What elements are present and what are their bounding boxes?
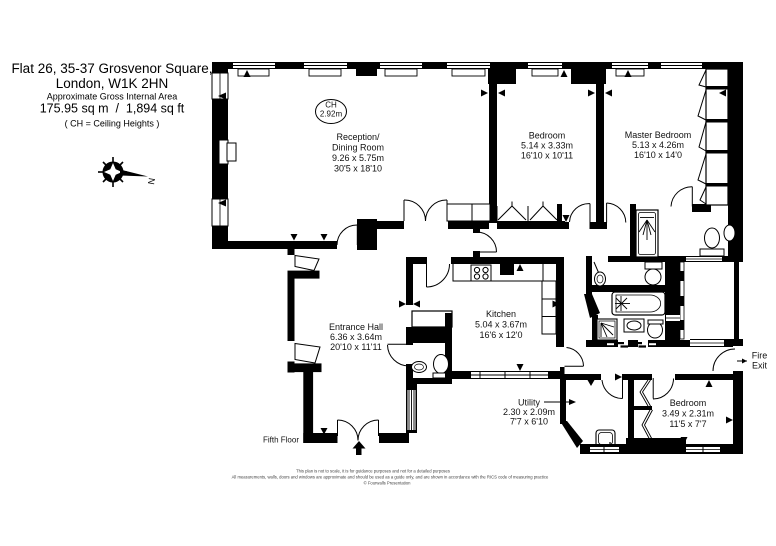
svg-text:6.36 x 3.64m: 6.36 x 3.64m bbox=[330, 332, 382, 342]
svg-text:Approximate Gross Internal Are: Approximate Gross Internal Area bbox=[47, 92, 178, 102]
svg-text:Fifth Floor: Fifth Floor bbox=[263, 436, 299, 445]
svg-text:7'7 x 6'10: 7'7 x 6'10 bbox=[510, 417, 548, 427]
svg-text:5.04 x 3.67m: 5.04 x 3.67m bbox=[475, 320, 527, 330]
svg-text:Fire: Fire bbox=[752, 351, 768, 361]
svg-text:2.30 x 2.09m: 2.30 x 2.09m bbox=[503, 407, 555, 417]
svg-text:2.92m: 2.92m bbox=[320, 110, 343, 119]
svg-text:Kitchen: Kitchen bbox=[486, 309, 516, 319]
svg-text:Bedroom: Bedroom bbox=[529, 131, 566, 141]
svg-text:16'6 x 12'0: 16'6 x 12'0 bbox=[480, 330, 523, 340]
svg-text:© Fourwalls Presentation: © Fourwalls Presentation bbox=[364, 481, 412, 486]
svg-text:All measurements, walls, doors: All measurements, walls, doors and windo… bbox=[232, 475, 549, 480]
svg-text:Flat 26, 35-37 Grosvenor Squar: Flat 26, 35-37 Grosvenor Square, bbox=[11, 61, 212, 76]
svg-text:Bedroom: Bedroom bbox=[670, 398, 707, 408]
svg-text:London, W1K 2HN: London, W1K 2HN bbox=[56, 76, 169, 91]
svg-text:Reception/: Reception/ bbox=[336, 132, 380, 142]
svg-text:Utility: Utility bbox=[518, 398, 540, 408]
svg-text:175.95 sq m / 1,894 sq ft: 175.95 sq m / 1,894 sq ft bbox=[40, 102, 185, 116]
svg-text:5.13 x 4.26m: 5.13 x 4.26m bbox=[632, 140, 684, 150]
svg-text:16'10 x 14'0: 16'10 x 14'0 bbox=[634, 150, 682, 160]
svg-text:20'10 x 11'11: 20'10 x 11'11 bbox=[330, 342, 382, 352]
svg-text:Entrance Hall: Entrance Hall bbox=[329, 322, 383, 332]
svg-text:5.14 x 3.33m: 5.14 x 3.33m bbox=[521, 141, 573, 151]
svg-text:11'5 x 7'7: 11'5 x 7'7 bbox=[669, 419, 706, 429]
svg-text:Dining Room: Dining Room bbox=[332, 143, 384, 153]
svg-text:30'5 x 18'10: 30'5 x 18'10 bbox=[334, 164, 382, 174]
svg-text:( CH = Ceiling Heights ): ( CH = Ceiling Heights ) bbox=[65, 119, 160, 129]
svg-text:Master Bedroom: Master Bedroom bbox=[625, 130, 692, 140]
svg-text:This plan is not to scale, it: This plan is not to scale, it is for gui… bbox=[296, 469, 450, 474]
svg-text:16'10 x 10'11: 16'10 x 10'11 bbox=[521, 151, 573, 161]
svg-text:9.26 x 5.75m: 9.26 x 5.75m bbox=[332, 153, 384, 163]
svg-text:3.49 x 2.31m: 3.49 x 2.31m bbox=[662, 409, 714, 419]
svg-text:Exit: Exit bbox=[752, 361, 768, 371]
svg-text:CH: CH bbox=[325, 101, 337, 110]
